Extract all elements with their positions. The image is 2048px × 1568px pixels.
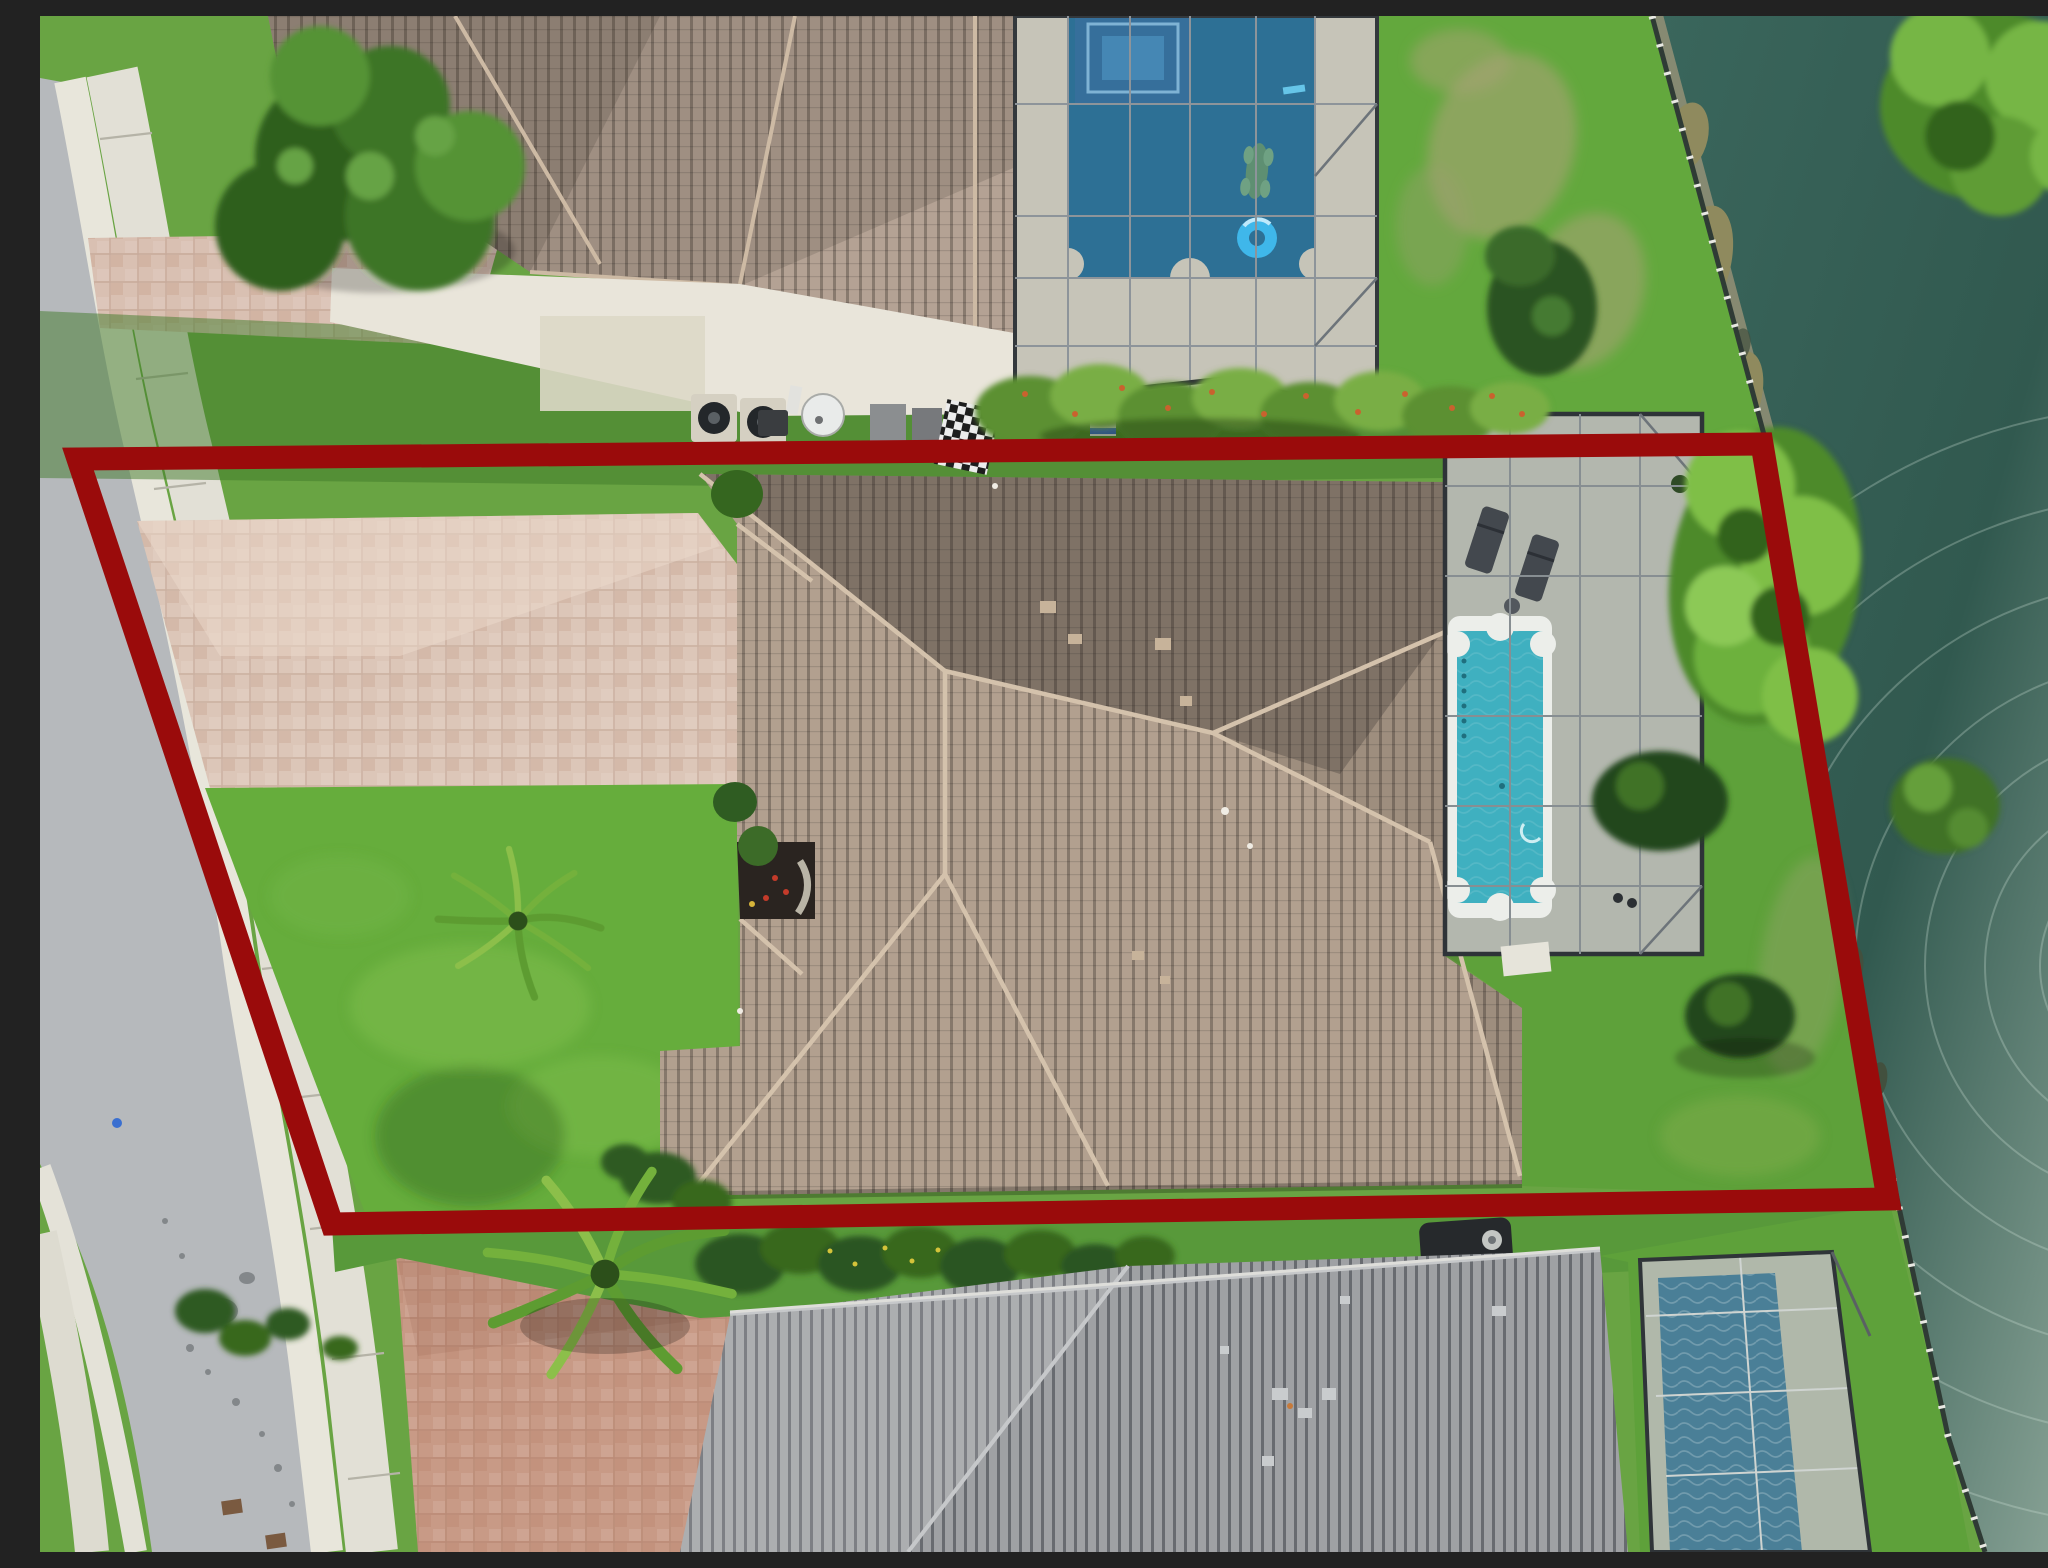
palm-shadow	[520, 1298, 690, 1354]
corner-shrub	[711, 470, 763, 518]
aerial-photo: Aerial drone photograph, looking straigh…	[40, 16, 2048, 1552]
walkway-shrub	[713, 782, 757, 822]
top-pool-spa	[1075, 16, 1190, 104]
satellite-dish	[802, 394, 844, 436]
roof-vent-dot	[1287, 1403, 1293, 1409]
shore-shrubs	[1890, 758, 2000, 854]
pool-equipment-1	[870, 404, 906, 444]
exterior-pad	[1501, 942, 1552, 977]
neighbor-pool-enclosure-bottom	[1640, 1252, 1870, 1552]
neighbor-pool-enclosure-top	[1015, 16, 1377, 414]
pool-equipment-2	[912, 408, 942, 442]
screened-lanai	[1444, 414, 1702, 976]
ac-unit-1	[691, 394, 737, 442]
side-table	[1504, 598, 1520, 614]
trash-bin	[758, 410, 788, 436]
lanai-pool	[1444, 613, 1556, 921]
street-debris-blue	[112, 1118, 122, 1128]
pool-drain	[1499, 783, 1505, 789]
top-house-patio-pad	[540, 316, 705, 411]
